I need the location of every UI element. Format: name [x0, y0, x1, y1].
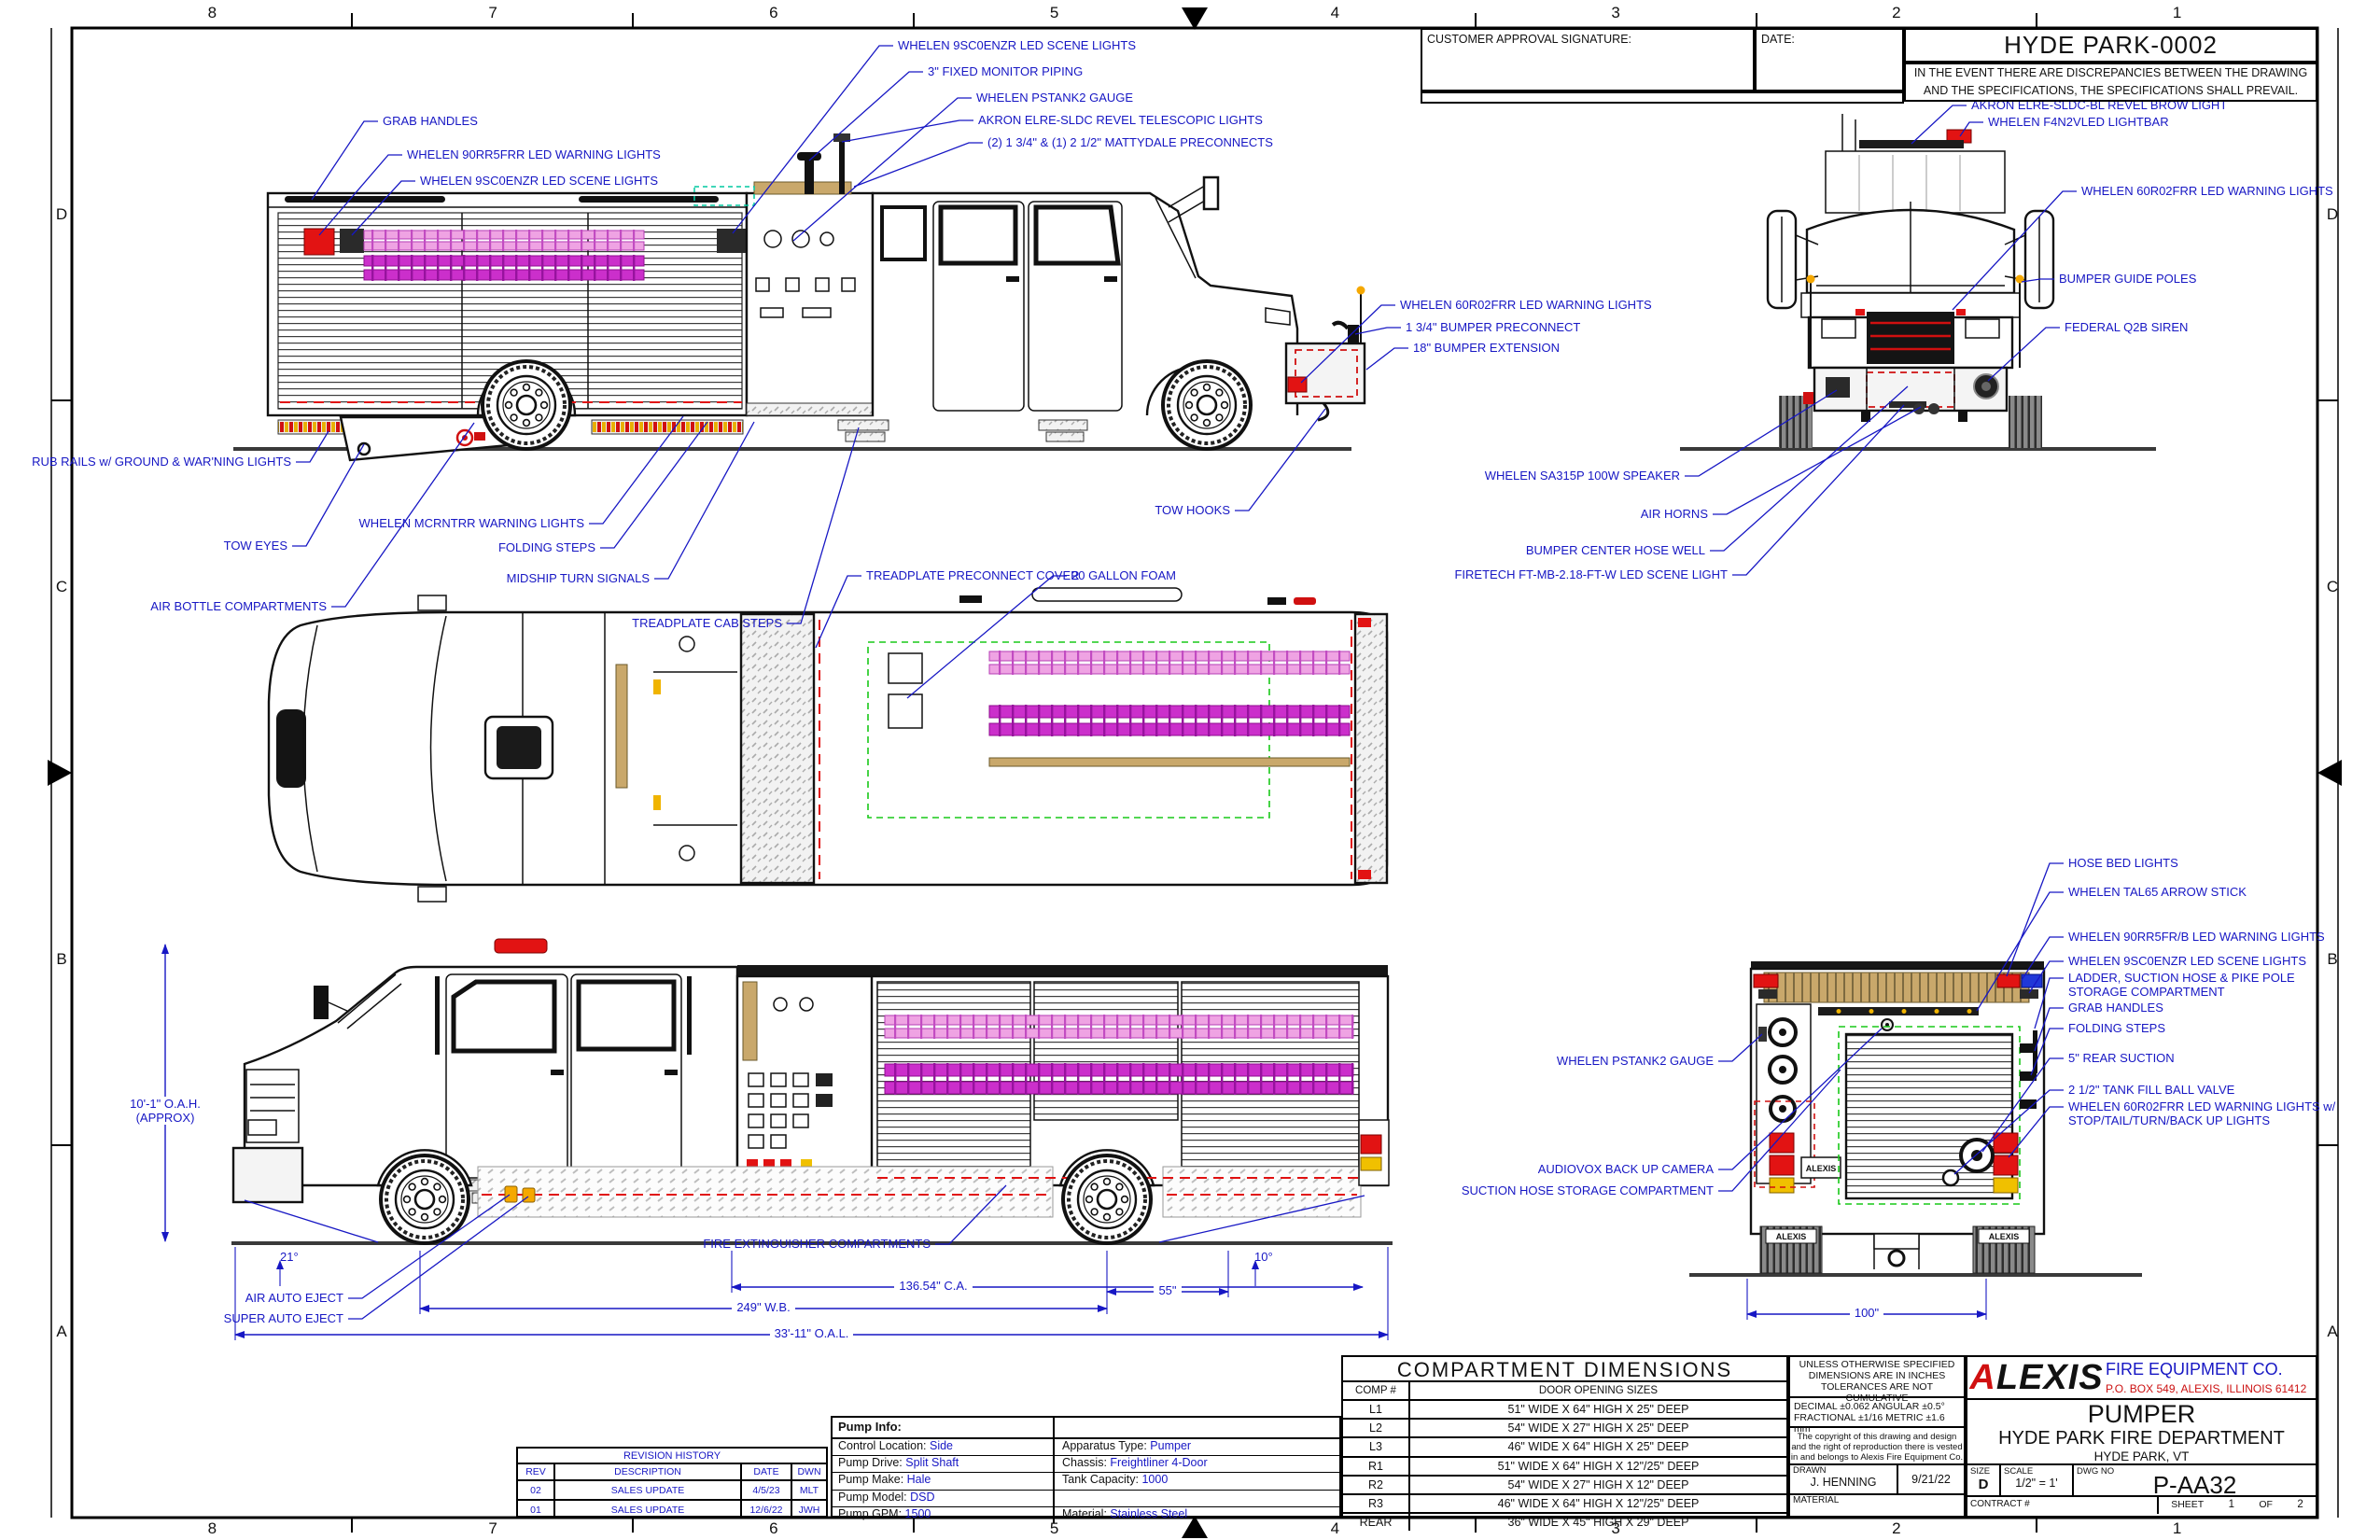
compartment-size: 46" WIDE X 64" HIGH X 12"/25" DEEP	[1410, 1495, 1786, 1512]
pump-info-right-cell	[1055, 1491, 1339, 1506]
field-label: Pump GPM:	[838, 1507, 902, 1520]
compartment-size: 54" WIDE X 27" HIGH X 25" DEEP	[1410, 1420, 1786, 1436]
pump-info-row: Pump Model: DSD	[833, 1491, 1339, 1507]
drawing-sheet: .ln1{stroke:#111;stroke-width:1.5}.ln2{s…	[0, 0, 2380, 1540]
leader-line	[1718, 1034, 1762, 1061]
revision-cell: 02	[518, 1481, 555, 1499]
disclaimer-line1: IN THE EVENT THERE ARE DISCREPANCIES BET…	[1914, 64, 2307, 82]
field-label: Pump Drive:	[838, 1456, 903, 1469]
compartment-number: R2	[1343, 1477, 1410, 1493]
leader-line	[809, 72, 923, 161]
sheet-number: 1	[2229, 1499, 2234, 1514]
leader-line	[793, 98, 972, 241]
compartment-number: REAR	[1343, 1514, 1410, 1531]
copyright-line2: and the right of reproduction there is v…	[1790, 1442, 1964, 1452]
leader-line	[2035, 978, 2064, 1029]
compartment-row: R346" WIDE X 64" HIGH X 12"/25" DEEP	[1343, 1495, 1786, 1514]
leader-line	[1911, 105, 1967, 144]
compartment-number: R1	[1343, 1458, 1410, 1475]
pump-info-left-cell: Pump GPM: 1500	[833, 1507, 1055, 1523]
leader-line	[352, 181, 415, 235]
compartment-size: 51" WIDE X 64" HIGH X 12"/25" DEEP	[1410, 1458, 1786, 1475]
product-type: PUMPER	[1967, 1400, 2316, 1428]
customer-location: HYDE PARK, VT	[1967, 1449, 2316, 1464]
leader-line	[1953, 191, 2077, 310]
disclaimer-line2: AND THE SPECIFICATIONS, THE SPECIFICATIO…	[1924, 82, 2298, 100]
field-label: Pump Model:	[838, 1491, 907, 1504]
pump-info-table: Pump Info: Control Location: SideApparat…	[831, 1416, 1341, 1518]
company-logo: ALEXIS	[1967, 1357, 2106, 1398]
company-name-line: FIRE EQUIPMENT CO.	[2106, 1360, 2316, 1379]
leader-line	[654, 422, 754, 579]
compartment-size: 46" WIDE X 64" HIGH X 25" DEEP	[1410, 1438, 1786, 1455]
sheet-total: 2	[2297, 1499, 2303, 1514]
revision-cell: SALES UPDATE	[555, 1481, 742, 1499]
leader-line	[1355, 328, 1401, 334]
revision-header-cell: REV	[518, 1464, 555, 1479]
revision-cell: JWH	[792, 1501, 826, 1519]
leader-line	[319, 155, 402, 235]
leader-line	[348, 1195, 510, 1298]
revision-row: 02SALES UPDATE4/5/23MLT	[518, 1481, 826, 1501]
field-label: Tank Capacity:	[1062, 1473, 1139, 1486]
leader-line	[296, 431, 329, 462]
revision-cell: SALES UPDATE	[555, 1501, 742, 1519]
logo-rest: LEXIS	[1996, 1358, 2104, 1398]
compartment-table-title: COMPARTMENT DIMENSIONS	[1343, 1357, 1786, 1382]
leader-line	[589, 416, 683, 524]
revision-header-cell: DWN	[792, 1464, 826, 1479]
field-value: 1000	[1139, 1473, 1168, 1486]
leader-line	[1685, 390, 1837, 476]
field-value: Stainless Steel	[1107, 1507, 1187, 1520]
field-value: Freightliner 4-Door	[1107, 1456, 1208, 1469]
pump-info-row: Control Location: SideApparatus Type: Pu…	[833, 1439, 1339, 1456]
pump-info-header: Pump Info:	[833, 1418, 1055, 1437]
leader-line	[331, 423, 474, 607]
company-address: P.O. BOX 549, ALEXIS, ILLINOIS 61412	[2106, 1382, 2316, 1395]
leader-line	[2022, 937, 2064, 980]
pump-info-left-cell: Control Location: Side	[833, 1439, 1055, 1455]
compartment-row: L254" WIDE X 27" HIGH X 25" DEEP	[1343, 1420, 1786, 1438]
pump-info-left-cell: Pump Make: Hale	[833, 1473, 1055, 1489]
leader-line	[348, 1197, 528, 1319]
revision-row: 01SALES UPDATE12/6/22JWH	[518, 1501, 826, 1519]
pump-info-left-cell: Pump Model: DSD	[833, 1491, 1055, 1506]
compartment-number: L3	[1343, 1438, 1410, 1455]
pump-info-right-cell: Apparatus Type: Pumper	[1055, 1439, 1339, 1455]
leader-line	[1301, 305, 1395, 383]
pump-info-row: Pump Drive: Split ShaftChassis: Freightl…	[833, 1456, 1339, 1473]
compartment-size: 54" WIDE X 27" HIGH X 12" DEEP	[1410, 1477, 1786, 1493]
drawing-title-box: HYDE PARK-0002	[1904, 28, 2317, 63]
pump-info-row: Pump GPM: 1500Material: Stainless Steel	[833, 1507, 1339, 1523]
compartment-size: 36" WIDE X 45" HIGH X 29" DEEP	[1410, 1514, 1786, 1531]
pump-info-right-cell: Tank Capacity: 1000	[1055, 1473, 1339, 1489]
pump-info-left-cell: Pump Drive: Split Shaft	[833, 1456, 1055, 1472]
field-value: 1500	[902, 1507, 931, 1520]
leader-line	[787, 427, 859, 623]
leader-line	[1954, 1090, 2064, 1174]
scale-value: 1/2" = 1'	[2001, 1477, 2072, 1490]
compartment-row: R254" WIDE X 27" HIGH X 12" DEEP	[1343, 1477, 1786, 1495]
field-value: Split Shaft	[903, 1456, 959, 1469]
leader-line	[1977, 892, 2064, 1011]
approval-date-box: DATE:	[1755, 28, 1904, 91]
drawing-title: HYDE PARK-0002	[2004, 31, 2218, 60]
customer-approval-box: CUSTOMER APPROVAL SIGNATURE:	[1421, 28, 1755, 91]
material-label: MATERIAL	[1790, 1495, 1964, 1512]
revision-history-table: REVISION HISTORY REVDESCRIPTIONDATEDWN 0…	[516, 1447, 828, 1518]
revision-rows: 02SALES UPDATE4/5/23MLT01SALES UPDATE12/…	[518, 1481, 826, 1519]
pump-info-right-cell: Material: Stainless Steel	[1055, 1507, 1339, 1523]
approval-strip	[1421, 91, 1904, 104]
field-value: Pumper	[1147, 1439, 1191, 1452]
leader-line	[292, 444, 364, 546]
drawn-date: 9/21/22	[1898, 1465, 1964, 1493]
scale-label: SCALE	[2001, 1465, 2072, 1477]
field-value: Hale	[903, 1473, 931, 1486]
comp-number-header: COMP #	[1343, 1382, 1410, 1399]
compartment-number: R3	[1343, 1495, 1410, 1512]
leader-line	[1235, 409, 1325, 511]
leader-line	[1718, 1070, 1841, 1191]
customer-name: HYDE PARK FIRE DEPARTMENT	[1967, 1428, 2316, 1449]
leader-line	[854, 143, 983, 187]
field-value: DSD	[907, 1491, 935, 1504]
copyright-line3: in and belongs to Alexis Fire Equipment …	[1790, 1452, 1964, 1463]
leader-line	[1988, 328, 2060, 381]
compartment-dimensions-table: COMPARTMENT DIMENSIONS COMP # DOOR OPENI…	[1341, 1355, 1788, 1518]
annotation-overlay	[0, 0, 2380, 1540]
field-label: Pump Make:	[838, 1473, 903, 1486]
leader-line	[2022, 279, 2054, 282]
revision-cell: MLT	[792, 1481, 826, 1499]
revision-cell: 01	[518, 1501, 555, 1519]
company-title-block: ALEXIS FIRE EQUIPMENT CO. P.O. BOX 549, …	[1966, 1355, 2317, 1518]
revision-header-cell: DESCRIPTION	[555, 1464, 742, 1479]
tolerance-values-line1: DECIMAL ±0.062 ANGULAR ±0.5°	[1794, 1401, 1964, 1412]
leader-line	[1366, 348, 1408, 370]
leader-line	[600, 422, 707, 548]
size-label: SIZE	[1967, 1465, 1999, 1477]
compartment-row: L346" WIDE X 64" HIGH X 25" DEEP	[1343, 1438, 1786, 1457]
compartment-row: REAR36" WIDE X 45" HIGH X 29" DEEP	[1343, 1514, 1786, 1531]
leader-line	[2031, 1029, 2064, 1075]
revision-header-row: REVDESCRIPTIONDATEDWN	[518, 1464, 826, 1481]
leader-line	[2009, 1107, 2064, 1157]
sheet-label: SHEET	[2171, 1499, 2204, 1514]
field-label: Control Location:	[838, 1439, 927, 1452]
door-opening-header: DOOR OPENING SIZES	[1410, 1382, 1786, 1399]
leader-line	[1960, 122, 1983, 136]
drawn-label: DRAWN	[1790, 1465, 1897, 1476]
revision-cell: 4/5/23	[742, 1481, 792, 1499]
drawn-name: J. HENNING	[1790, 1476, 1897, 1489]
leader-line	[312, 121, 378, 200]
revision-header-cell: DATE	[742, 1464, 792, 1479]
approval-signature-label: CUSTOMER APPROVAL SIGNATURE:	[1422, 30, 1753, 46]
pump-info-rows: Control Location: SideApparatus Type: Pu…	[833, 1439, 1339, 1523]
revision-title: REVISION HISTORY	[518, 1449, 826, 1464]
leader-line	[1718, 1029, 1882, 1169]
tolerance-line1: UNLESS OTHERWISE SPECIFIED	[1790, 1359, 1964, 1370]
compartment-size: 51" WIDE X 64" HIGH X 25" DEEP	[1410, 1401, 1786, 1418]
field-label: Chassis:	[1062, 1456, 1107, 1469]
revision-cell: 12/6/22	[742, 1501, 792, 1519]
leader-line	[842, 120, 973, 142]
approval-date-label: DATE:	[1757, 30, 1902, 46]
compartment-number: L2	[1343, 1420, 1410, 1436]
compartment-row: R151" WIDE X 64" HIGH X 12"/25" DEEP	[1343, 1458, 1786, 1477]
leader-line	[1982, 1058, 2064, 1152]
tolerance-line2: DIMENSIONS ARE IN INCHES	[1790, 1370, 1964, 1381]
compartment-row: L151" WIDE X 64" HIGH X 25" DEEP	[1343, 1401, 1786, 1420]
sheet-of-label: OF	[2259, 1499, 2273, 1514]
compartment-number: L1	[1343, 1401, 1410, 1418]
logo-letter-a: A	[1969, 1358, 1995, 1398]
field-value: Side	[927, 1439, 954, 1452]
leader-line	[816, 576, 861, 648]
leader-line	[907, 576, 1067, 698]
leader-line	[733, 46, 893, 233]
disclaimer-box: IN THE EVENT THERE ARE DISCREPANCIES BET…	[1904, 63, 2317, 102]
tolerance-block: UNLESS OTHERWISE SPECIFIED DIMENSIONS AR…	[1788, 1355, 1966, 1518]
compartment-rows: L151" WIDE X 64" HIGH X 25" DEEPL254" WI…	[1343, 1401, 1786, 1531]
copyright-line1: The copyright of this drawing and design	[1790, 1432, 1964, 1442]
size-value: D	[1967, 1477, 1999, 1492]
pump-info-row: Pump Make: HaleTank Capacity: 1000	[833, 1473, 1339, 1490]
field-label: Apparatus Type:	[1062, 1439, 1147, 1452]
pump-info-right-cell: Chassis: Freightliner 4-Door	[1055, 1456, 1339, 1472]
field-label: Material:	[1062, 1507, 1107, 1520]
leader-line	[935, 1185, 1006, 1244]
